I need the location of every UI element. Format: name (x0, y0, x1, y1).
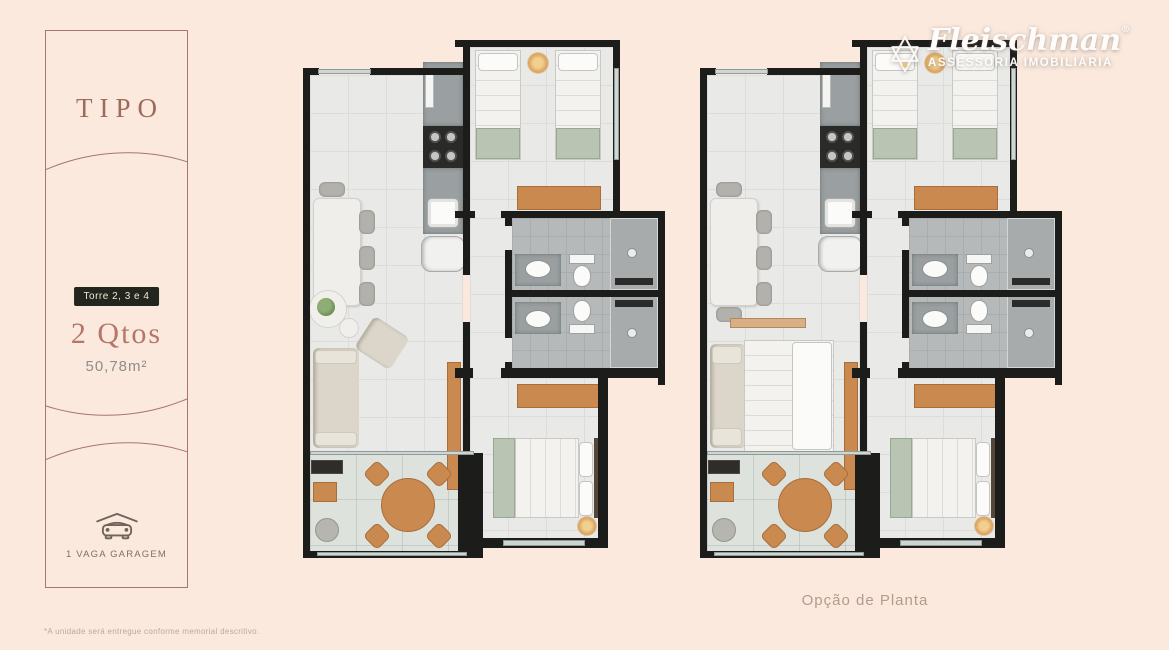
door-opening (505, 226, 512, 250)
bed-blanket (873, 128, 917, 159)
apartment-floor-plan (303, 40, 665, 558)
bedside-lamp (577, 516, 597, 536)
towel-niche (615, 278, 653, 285)
towel-niche (615, 300, 653, 307)
towel-niche (1012, 278, 1050, 285)
footnote: *A unidade será entregue conforme memori… (44, 627, 259, 636)
sofa-bed-sheet (792, 342, 832, 450)
bed-pillow (558, 53, 598, 71)
wall (370, 68, 463, 75)
bed-blanket (890, 438, 912, 518)
window-glass (310, 451, 474, 455)
bed-blanket (953, 128, 997, 159)
window-glass (1011, 68, 1016, 160)
dining-chair (319, 182, 345, 197)
wood-shelf (730, 318, 806, 328)
refrigerator (818, 236, 862, 272)
bedrooms-label: 2 Qtos (46, 317, 187, 351)
car-garage-icon (94, 511, 140, 543)
bathroom-sink (525, 310, 551, 328)
apartment-floor-plan (700, 40, 1062, 558)
dining-chair (756, 282, 772, 306)
door-opening (870, 368, 898, 378)
window-glass (317, 552, 467, 556)
garage-label: 1 VAGA GARAGEM (46, 549, 187, 560)
bedside-lamp (974, 516, 994, 536)
toilet (966, 254, 992, 264)
wall (658, 211, 665, 385)
dining-chair (716, 182, 742, 197)
wall (860, 40, 867, 275)
cooktop (820, 126, 860, 168)
refrigerator (421, 236, 465, 272)
type-info-card: TIPO Torre 2, 3 e 4 2 Qtos 50,78m² 1 VAG… (45, 30, 188, 588)
balcony-table (778, 478, 832, 532)
decorative-arc (45, 421, 188, 588)
balcony-stool (315, 518, 339, 542)
wall (767, 68, 860, 75)
bed-pillow (976, 442, 990, 477)
toilet (966, 324, 992, 334)
wall (909, 290, 1055, 297)
toilet (970, 300, 988, 322)
dining-table (313, 198, 361, 306)
bed-pillow (478, 53, 518, 71)
plant (317, 298, 335, 316)
wall (995, 378, 1005, 538)
side-table (339, 318, 359, 338)
wall (898, 368, 1062, 378)
bathroom-sink (922, 310, 948, 328)
dresser (517, 186, 601, 210)
towel-niche (1012, 300, 1050, 307)
dresser (517, 384, 601, 408)
bathroom-sink (922, 260, 948, 278)
wall (303, 68, 310, 558)
wall (455, 40, 620, 47)
dresser (914, 384, 998, 408)
sofa-armrest (315, 350, 357, 364)
bed-blanket (556, 128, 600, 159)
double-bed (515, 438, 579, 518)
shower-head-icon (1024, 328, 1034, 338)
area-label: 50,78m² (46, 358, 187, 375)
hallway-floor (867, 218, 902, 368)
balcony-sideboard (708, 460, 740, 474)
dining-chair (359, 210, 375, 234)
plan-option-caption: Opção de Planta (700, 592, 1030, 609)
registered-mark: ® (1121, 25, 1130, 35)
balcony-stool (712, 518, 736, 542)
bed-blanket (493, 438, 515, 518)
shower-head-icon (1024, 248, 1034, 258)
window-glass (614, 68, 619, 160)
dining-table (710, 198, 758, 306)
floor-plan-option (700, 40, 1062, 558)
toilet (573, 265, 591, 287)
toilet (573, 300, 591, 322)
balcony-cabinet (313, 482, 337, 502)
balcony-table (381, 478, 435, 532)
floor-plan-standard (303, 40, 665, 558)
toilet (569, 324, 595, 334)
shower-head-icon (627, 328, 637, 338)
door-opening (902, 338, 909, 362)
bed-pillow (579, 442, 593, 477)
window-glass (715, 69, 768, 74)
bathroom-sink (525, 260, 551, 278)
star-of-david-icon (888, 34, 922, 74)
window-glass (707, 451, 871, 455)
dining-chair (756, 246, 772, 270)
dining-chair (756, 210, 772, 234)
wall (303, 68, 319, 75)
brand-name: Fleischman® (928, 26, 1130, 56)
wall (463, 322, 470, 453)
balcony-sideboard (311, 460, 343, 474)
tower-badge: Torre 2, 3 e 4 (74, 287, 160, 306)
window-glass (714, 552, 864, 556)
door-opening (475, 211, 501, 218)
sofa-armrest (712, 346, 742, 364)
floorplan-brochure-page: { "brand": { "name": "Fleischman", "regi… (0, 0, 1169, 650)
cooktop (423, 126, 463, 168)
brand-logo: Fleischman® ASSESSORIA IMOBILIÁRIA (888, 26, 1158, 74)
double-bed (912, 438, 976, 518)
card-title: TIPO (46, 93, 187, 124)
balcony-cabinet (710, 482, 734, 502)
bed-blanket (476, 128, 520, 159)
wall (700, 68, 707, 558)
dining-chair (359, 246, 375, 270)
bed-pillow (579, 481, 593, 516)
dining-chair (359, 282, 375, 306)
wall (1055, 211, 1062, 385)
brand-tagline: ASSESSORIA IMOBILIÁRIA (928, 58, 1130, 70)
door-opening (902, 226, 909, 250)
wall (860, 322, 867, 453)
garage-info: 1 VAGA GARAGEM (46, 511, 187, 560)
decorative-arc (45, 131, 188, 437)
hallway-floor (470, 218, 505, 368)
window-glass (900, 540, 982, 546)
wall (852, 368, 870, 378)
bed-pillow (976, 481, 990, 516)
shower-head-icon (627, 248, 637, 258)
wall (598, 378, 608, 538)
wall (455, 368, 473, 378)
dresser (914, 186, 998, 210)
wall (501, 368, 665, 378)
toilet (569, 254, 595, 264)
toilet (970, 265, 988, 287)
wall (700, 68, 716, 75)
window-glass (318, 69, 371, 74)
door-opening (473, 368, 501, 378)
wall (512, 290, 658, 297)
sofa-armrest (712, 428, 742, 446)
table-lamp (527, 52, 549, 74)
window-glass (503, 540, 585, 546)
door-opening (872, 211, 898, 218)
sofa-armrest (315, 432, 357, 446)
wall (463, 40, 470, 275)
door-opening (505, 338, 512, 362)
